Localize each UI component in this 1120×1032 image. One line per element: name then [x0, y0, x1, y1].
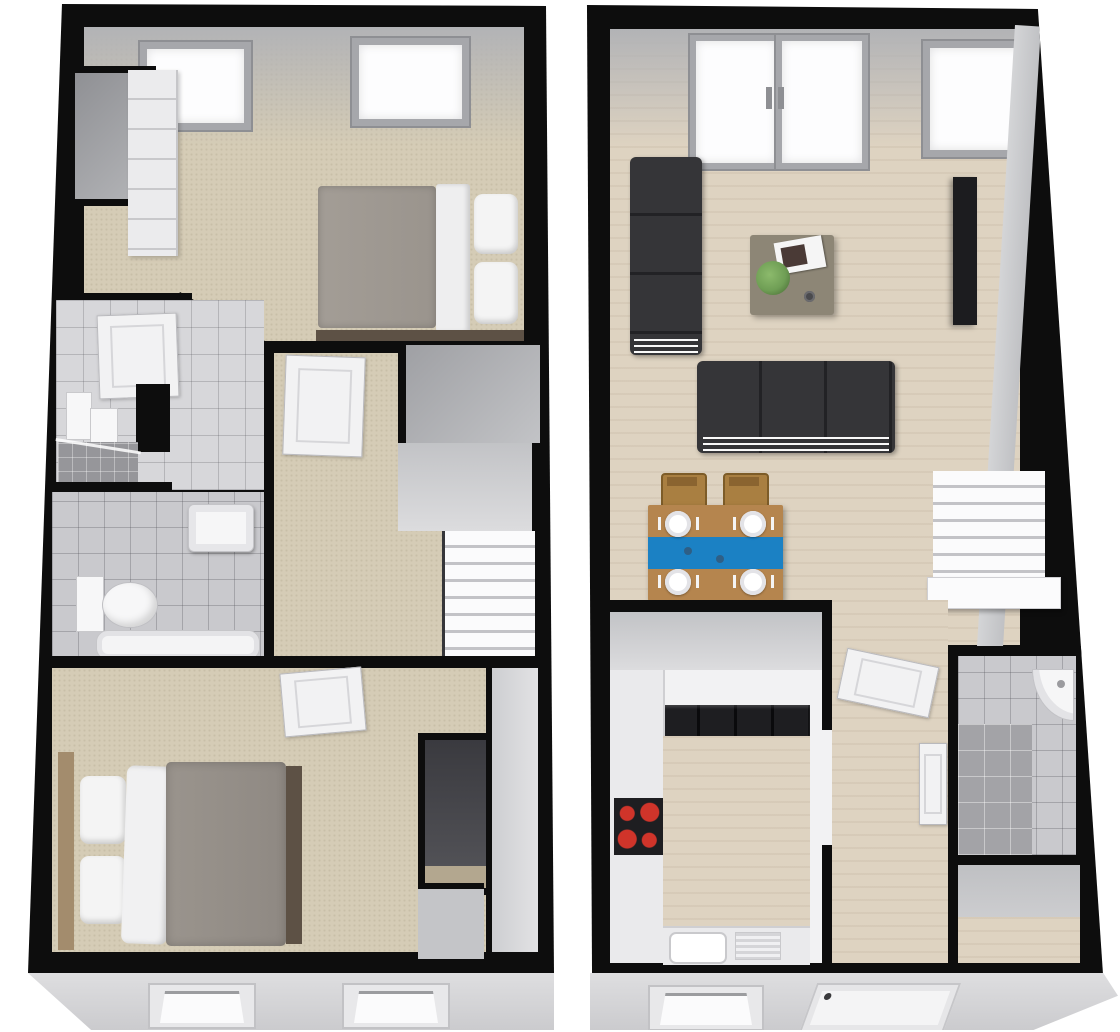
magazine-cover-photo [781, 244, 808, 268]
kitchen-sink [669, 932, 727, 964]
bed-headboard [58, 752, 74, 950]
internal-wall [822, 612, 832, 730]
bedroom-2-wall-face [486, 668, 538, 952]
front-door [799, 983, 961, 1032]
internal-wall [948, 646, 1098, 656]
cutlery [658, 575, 661, 588]
place-setting-plate [665, 569, 691, 595]
internal-wall [822, 845, 832, 963]
exterior-window-glass [354, 991, 438, 1023]
cutlery [771, 575, 774, 588]
first-floor-plan [28, 4, 554, 973]
cutlery [696, 517, 699, 530]
double-bed [316, 182, 524, 344]
bedroom-1-door [282, 355, 365, 458]
basin-tap [1057, 680, 1065, 688]
bed-duvet [318, 186, 436, 328]
ground-floor-exterior-wall [590, 973, 1118, 1030]
place-setting-plate [740, 569, 766, 595]
bed-sheet-fold [436, 184, 470, 332]
chair-backrest [729, 477, 759, 486]
internal-wall [52, 482, 172, 492]
french-doors [690, 35, 858, 159]
cutlery [771, 517, 774, 530]
vanity-unit [66, 392, 92, 440]
sofa-3-seat [697, 361, 895, 453]
toilet-cistern [76, 576, 104, 632]
landing-storage-cupboard [398, 345, 540, 451]
chair-backrest [667, 477, 697, 486]
cutlery [658, 517, 661, 530]
exterior-window [148, 983, 256, 1029]
cutlery [696, 575, 699, 588]
staircase-ground-floor [933, 471, 1045, 579]
internal-wall [610, 600, 847, 612]
first-floor-exterior-wall [28, 973, 554, 1030]
bed-pillow [474, 194, 518, 254]
chimney-block [418, 883, 484, 959]
shower-wet-area [958, 724, 1032, 855]
sink-drainer [735, 932, 781, 960]
cup [804, 291, 815, 302]
kitchen-floor [663, 736, 810, 926]
staircase-first-floor [442, 531, 535, 656]
sofa-base-rails [634, 339, 698, 353]
bed-pillow [80, 776, 126, 844]
sofa-base-rails [703, 437, 889, 451]
cutlery [733, 517, 736, 530]
wall-tv [953, 177, 977, 325]
shower-room-door [919, 743, 947, 825]
coffee-table [750, 235, 834, 315]
door-handle [778, 87, 784, 109]
hob-4-ring [614, 798, 663, 855]
internal-wall [948, 646, 958, 963]
place-setting-plate [740, 511, 766, 537]
internal-wall [52, 656, 532, 668]
glass [716, 555, 724, 563]
kitchen-wall-face [610, 612, 840, 670]
french-door-leaf [776, 35, 868, 169]
bedroom-2-door [279, 667, 366, 738]
front-door-handle [823, 993, 833, 1000]
sofa-3-seat [630, 157, 702, 355]
table-runner [648, 537, 783, 569]
stairwell-wall-face [398, 443, 532, 531]
ground-floor-plan [585, 5, 1105, 973]
glass [684, 547, 692, 555]
wall-hung-basin [188, 504, 254, 552]
store-cupboard-floor [958, 917, 1080, 963]
exterior-window [648, 985, 764, 1031]
roof-window [352, 38, 469, 126]
bed-duvet [166, 762, 286, 946]
bed-frame-base [286, 766, 302, 944]
plant [756, 261, 790, 295]
place-setting-plate [665, 511, 691, 537]
bed-pillow [474, 262, 518, 324]
appliance-run [663, 705, 810, 736]
floorplan-canvas [0, 0, 1120, 1032]
wall-stub [136, 384, 170, 452]
cutlery [733, 575, 736, 588]
door-handle [766, 87, 772, 109]
toilet-bowl [102, 582, 158, 628]
internal-wall [264, 341, 274, 661]
internal-wall [958, 855, 1088, 865]
exterior-window-glass [160, 991, 244, 1023]
wardrobe-drawer-unit [128, 70, 178, 256]
exterior-window [342, 983, 450, 1029]
bed-pillow [80, 856, 126, 924]
double-bed [58, 752, 304, 950]
dining-table [648, 505, 783, 601]
exterior-window-glass [660, 993, 752, 1025]
